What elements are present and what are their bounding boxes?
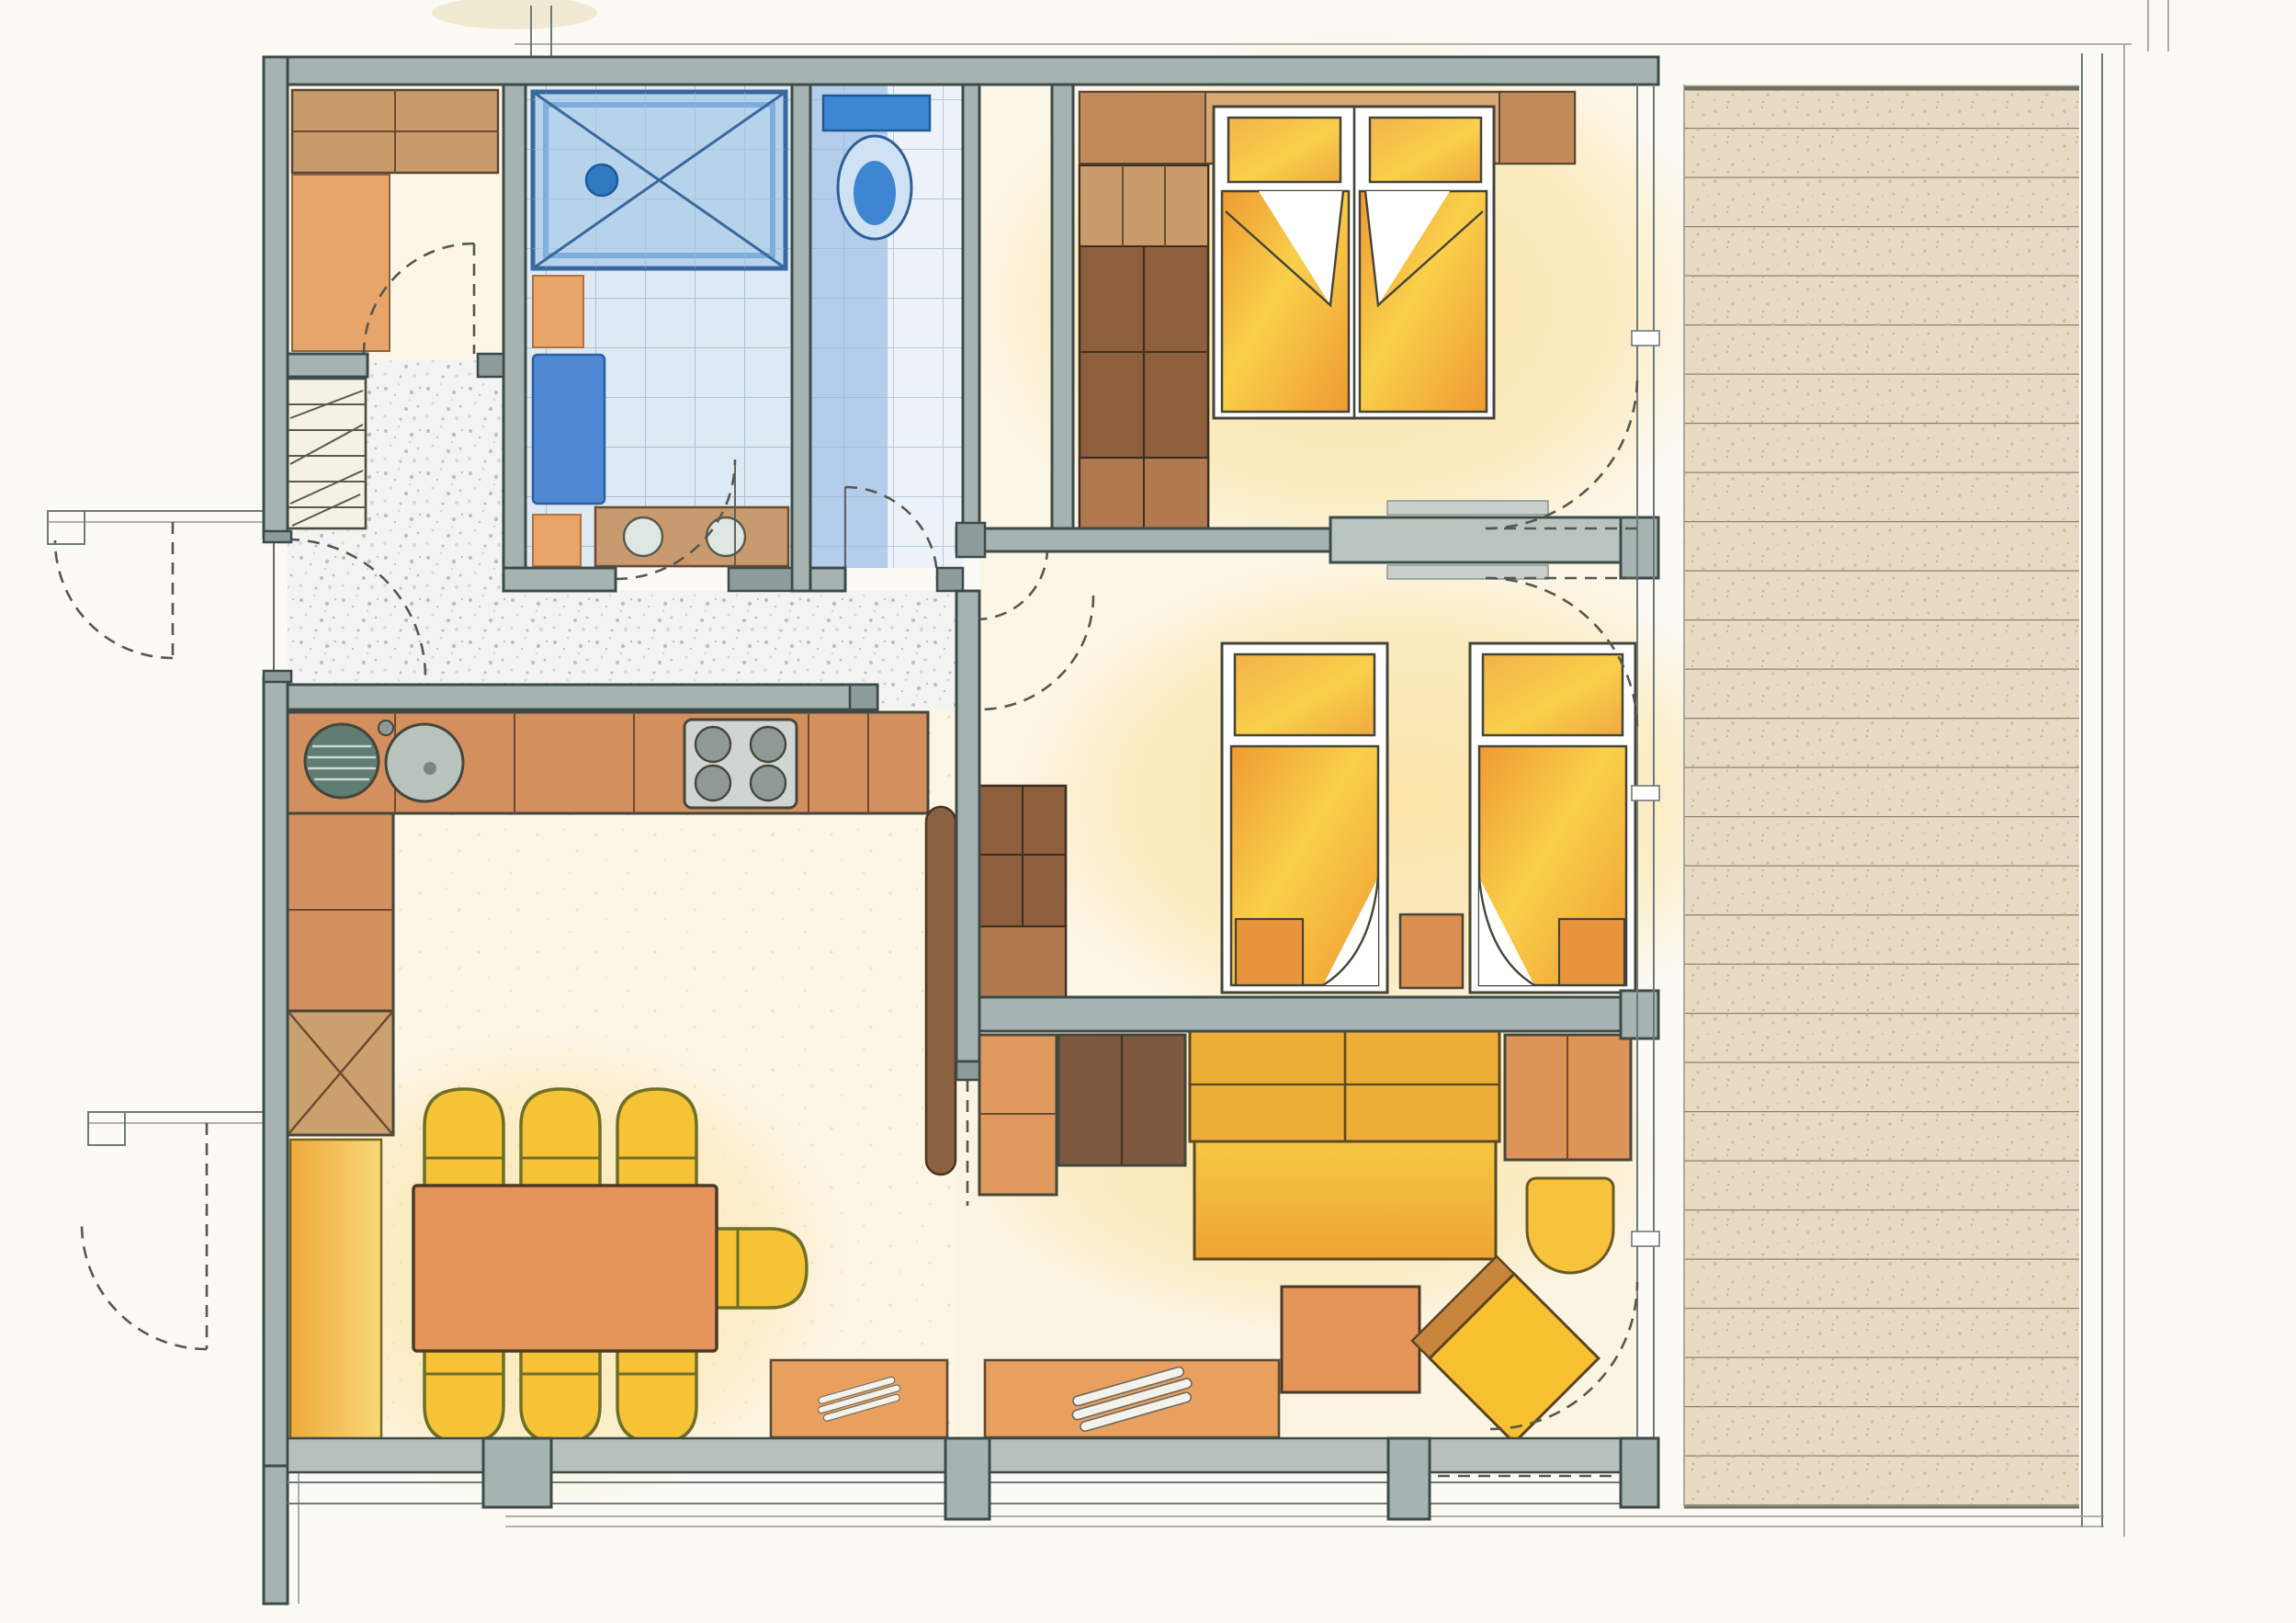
wc-south-wall-west — [810, 568, 845, 591]
bedroom-divider-wall — [956, 528, 1341, 551]
bathroom-wc-wall — [792, 85, 810, 591]
sofa-seat — [1194, 1141, 1496, 1259]
burner-1 — [696, 727, 730, 762]
storage-south-wall-cap — [478, 354, 503, 377]
headboard-block-left — [1080, 92, 1205, 164]
sink-basin — [386, 724, 463, 801]
bedroom2-floor-glow — [1011, 551, 1782, 1048]
storage-south-wall-west — [288, 354, 368, 377]
sliding-door-panel — [1330, 517, 1624, 562]
radiator-living — [985, 1360, 1279, 1437]
sofa — [1190, 1031, 1499, 1259]
nightstand — [1400, 914, 1463, 988]
mullion-post-left — [483, 1438, 551, 1507]
open-door-leaf-panel — [926, 807, 956, 1175]
pillow-left — [1228, 118, 1340, 182]
storage-side-shelf — [292, 175, 390, 351]
dining-chair — [424, 1342, 503, 1443]
top-exterior-wall — [264, 57, 1658, 85]
window-joint-mark — [1632, 331, 1659, 346]
dining-table — [413, 1186, 717, 1351]
vanity-basin-2 — [707, 517, 745, 556]
double-bed — [1214, 107, 1494, 418]
sink-faucet — [379, 721, 393, 735]
corner-post — [1621, 1438, 1658, 1507]
dining-chair-end — [706, 1229, 807, 1308]
burner-4 — [751, 766, 786, 800]
left-exterior-wall-lower — [264, 677, 288, 1466]
mullion-post-center — [945, 1438, 990, 1519]
deck-speckle — [1684, 85, 2079, 1507]
single-bed-right — [1470, 643, 1635, 993]
stove — [684, 720, 797, 808]
hall-kitchen-wall-cap — [850, 685, 877, 709]
right-wall-post-lower — [1621, 991, 1658, 1038]
dining-chair — [424, 1089, 503, 1190]
shower — [533, 92, 786, 268]
kitchen-counter-left-run — [288, 813, 393, 1011]
window-joint-mark — [1632, 1231, 1659, 1246]
burner-2 — [751, 727, 786, 762]
floor-plan-drawing — [0, 0, 2296, 1623]
burner-3 — [696, 766, 730, 800]
bedroom2-living-wall — [979, 997, 1637, 1031]
left-exterior-wall-upper — [264, 57, 288, 538]
wooden-deck — [1684, 44, 2124, 1537]
wc-closet-wall — [963, 85, 979, 548]
closet-bedroom1-wall — [1052, 85, 1073, 528]
shower-drain — [586, 165, 617, 196]
window-joint-mark — [1632, 786, 1659, 800]
entrance-jamb-top — [264, 531, 291, 542]
dining-chair — [617, 1089, 696, 1190]
coffee-table — [1282, 1287, 1419, 1392]
wardrobe-bedroom1 — [1080, 165, 1208, 538]
dining-chair — [521, 1342, 600, 1443]
bathroom-south-wall-west — [503, 568, 616, 591]
bathroom-south-wall-cap — [729, 568, 792, 591]
wc-south-wall-cap — [937, 568, 963, 591]
sink-drainer — [305, 724, 379, 798]
floor-plan-page — [0, 0, 2296, 1623]
dining-chair — [617, 1342, 696, 1443]
hall-kitchen-wall — [288, 685, 877, 709]
sliding-door-track-top — [1387, 501, 1548, 515]
hall-shoe-rack — [288, 379, 366, 528]
storage-bathroom-wall — [503, 85, 526, 591]
radiator-dining — [771, 1360, 947, 1437]
toilet-bowl-inner — [854, 161, 896, 225]
vanity — [595, 507, 788, 566]
bathroom-accent-tile-1 — [533, 276, 583, 347]
hall-living-wall-cap — [956, 1061, 979, 1080]
bedroom-divider-cap — [956, 523, 985, 557]
wall-bench-strip — [290, 1140, 381, 1438]
single-bed-left — [1222, 643, 1387, 993]
vanity-basin-1 — [624, 517, 662, 556]
pillow — [1483, 654, 1623, 735]
wardrobe-bedroom2 — [979, 786, 1066, 997]
toilet-cistern — [823, 96, 930, 131]
tub-chair — [1527, 1178, 1613, 1273]
headboard-block-right — [1499, 92, 1575, 164]
pillow — [1235, 654, 1374, 735]
sliding-door-track-bottom — [1387, 565, 1548, 579]
folded-blanket — [1559, 919, 1624, 985]
right-wall-post-upper — [1621, 517, 1658, 578]
bathroom-accent-tile-2 — [533, 515, 581, 566]
entrance-jamb-bottom — [264, 671, 291, 682]
dining-chair — [521, 1089, 600, 1190]
folded-blanket — [1236, 919, 1303, 985]
left-wall-stub-below — [264, 1466, 288, 1604]
mullion-post-right — [1388, 1438, 1430, 1519]
sink-plug — [424, 762, 436, 775]
bath-mat — [533, 355, 605, 504]
pillow-right — [1370, 118, 1481, 182]
hall-living-wall — [956, 591, 979, 1061]
